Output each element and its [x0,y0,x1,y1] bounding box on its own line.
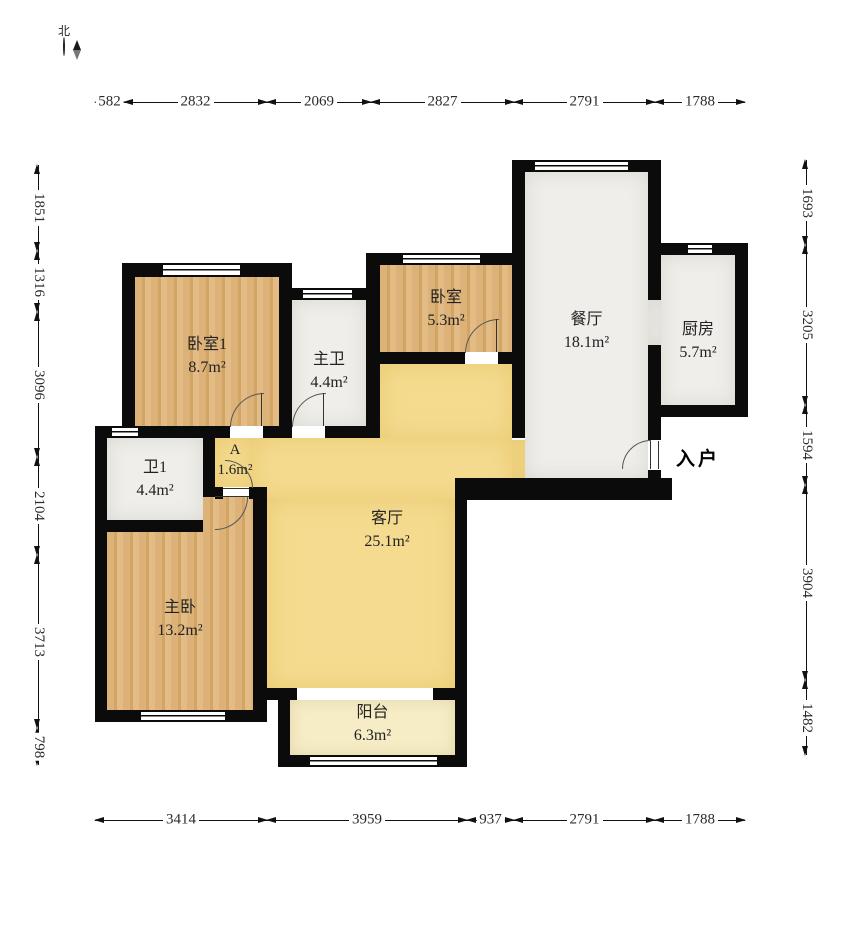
dimension-segment: 1316 [38,251,39,312]
dimension-segment: 1693 [806,160,807,245]
room-area: 25.1m² [290,530,484,553]
room-name: 卧室 [380,286,512,309]
room-area: 4.4m² [107,479,203,502]
room-name: 卧室1 [135,333,279,356]
room-name: 客厅 [290,507,484,530]
wall [325,426,380,438]
room-area: 5.7m² [661,341,735,364]
window-symbol [310,755,437,767]
wall [648,345,661,440]
room-area: 4.4m² [292,371,366,394]
wall [95,520,203,532]
room-label-master-bedroom: 主卧 13.2m² [107,596,253,642]
compass-needle-south [73,50,81,60]
compass-needle-north [73,40,81,50]
room-label-dining: 餐厅 18.1m² [525,308,648,354]
dimension-segment: 2827 [371,102,514,103]
wall [122,263,163,277]
window-symbol [303,288,352,300]
dimension-segment: 2104 [38,457,39,555]
room-area: 5.3m² [380,309,512,332]
dimension-segment: 2069 [267,102,371,103]
door-threshold [650,441,659,469]
dimension-segment: 3414 [95,820,267,821]
dimension-segment: 1788 [655,102,745,103]
wall [279,288,303,300]
north-label: 北 [44,24,84,38]
room-name: 卫1 [107,456,203,479]
compass-circle [63,37,65,56]
dining-kitchen-opening [648,300,661,345]
dimension-segment: 937 [467,820,514,821]
door-threshold [223,488,249,497]
dimension-segment: 1482 [806,680,807,755]
room-name: 厨房 [661,318,735,341]
compass-icon: 北 [44,24,84,82]
room-label-bedroom1: 卧室1 8.7m² [135,333,279,379]
wall [735,243,748,417]
wall [278,755,310,767]
dimension-segment: 3205 [806,245,807,405]
dimension-segment: 2832 [124,102,267,103]
wall [95,426,107,722]
wall [366,352,465,364]
wall [648,243,688,255]
dimension-segment: 1788 [655,820,745,821]
dimension-segment: 3904 [806,485,807,680]
entry-label: 入户 [676,444,720,471]
wall [366,253,403,265]
room-name: 主卫 [292,348,366,371]
wall [512,160,525,438]
dimension-segment: 2791 [514,820,655,821]
dimension-segment: 582 [95,102,124,103]
dimension-segment: 3096 [38,312,39,457]
wall [437,755,467,767]
window-symbol [163,263,240,277]
room-label-master-bath: 主卫 4.4m² [292,348,366,394]
room-area: 13.2m² [107,619,253,642]
wall [225,710,267,722]
window-symbol [112,426,138,438]
room-name: 主卧 [107,596,253,619]
window-symbol [403,253,480,265]
dimension-segment: 3959 [267,820,467,821]
room-label-bedroom2: 卧室 5.3m² [380,286,512,332]
wall [512,160,535,172]
door-leaf [323,393,324,426]
floor-plan: 北 [0,0,844,927]
dimension-segment: 1594 [806,405,807,485]
room-name: 餐厅 [525,308,648,331]
room-label-balcony: 阳台 6.3m² [290,701,455,747]
room-label-closet-a: A 1.6m² [206,441,264,480]
room-label-bath1: 卫1 4.4m² [107,456,203,502]
wall [122,263,135,437]
room-area: 6.3m² [290,724,455,747]
wall [263,426,292,438]
dimension-segment: 1851 [38,165,39,251]
room-area: 18.1m² [525,331,648,354]
window-symbol [535,160,628,172]
living-dining-opening [512,440,525,478]
wall [648,160,661,243]
wall [648,405,748,417]
room-area: 8.7m² [135,356,279,379]
wall [95,710,141,722]
window-symbol [141,710,225,722]
room-label-living: 客厅 25.1m² [290,507,484,553]
dimension-segment: 798 [38,728,39,765]
wall [366,253,380,438]
dimension-segment: 3713 [38,555,39,728]
wall [455,478,672,500]
room-living-floor-upper [380,364,512,439]
window-symbol [688,243,712,255]
dimension-segment: 2791 [514,102,655,103]
wall [138,426,230,438]
door-leaf [261,393,262,426]
room-name: 阳台 [290,701,455,724]
wall [253,487,267,722]
room-label-kitchen: 厨房 5.7m² [661,318,735,364]
wall [253,688,297,700]
room-name: A [206,441,264,461]
wall [480,253,514,265]
room-area: 1.6m² [206,461,264,481]
